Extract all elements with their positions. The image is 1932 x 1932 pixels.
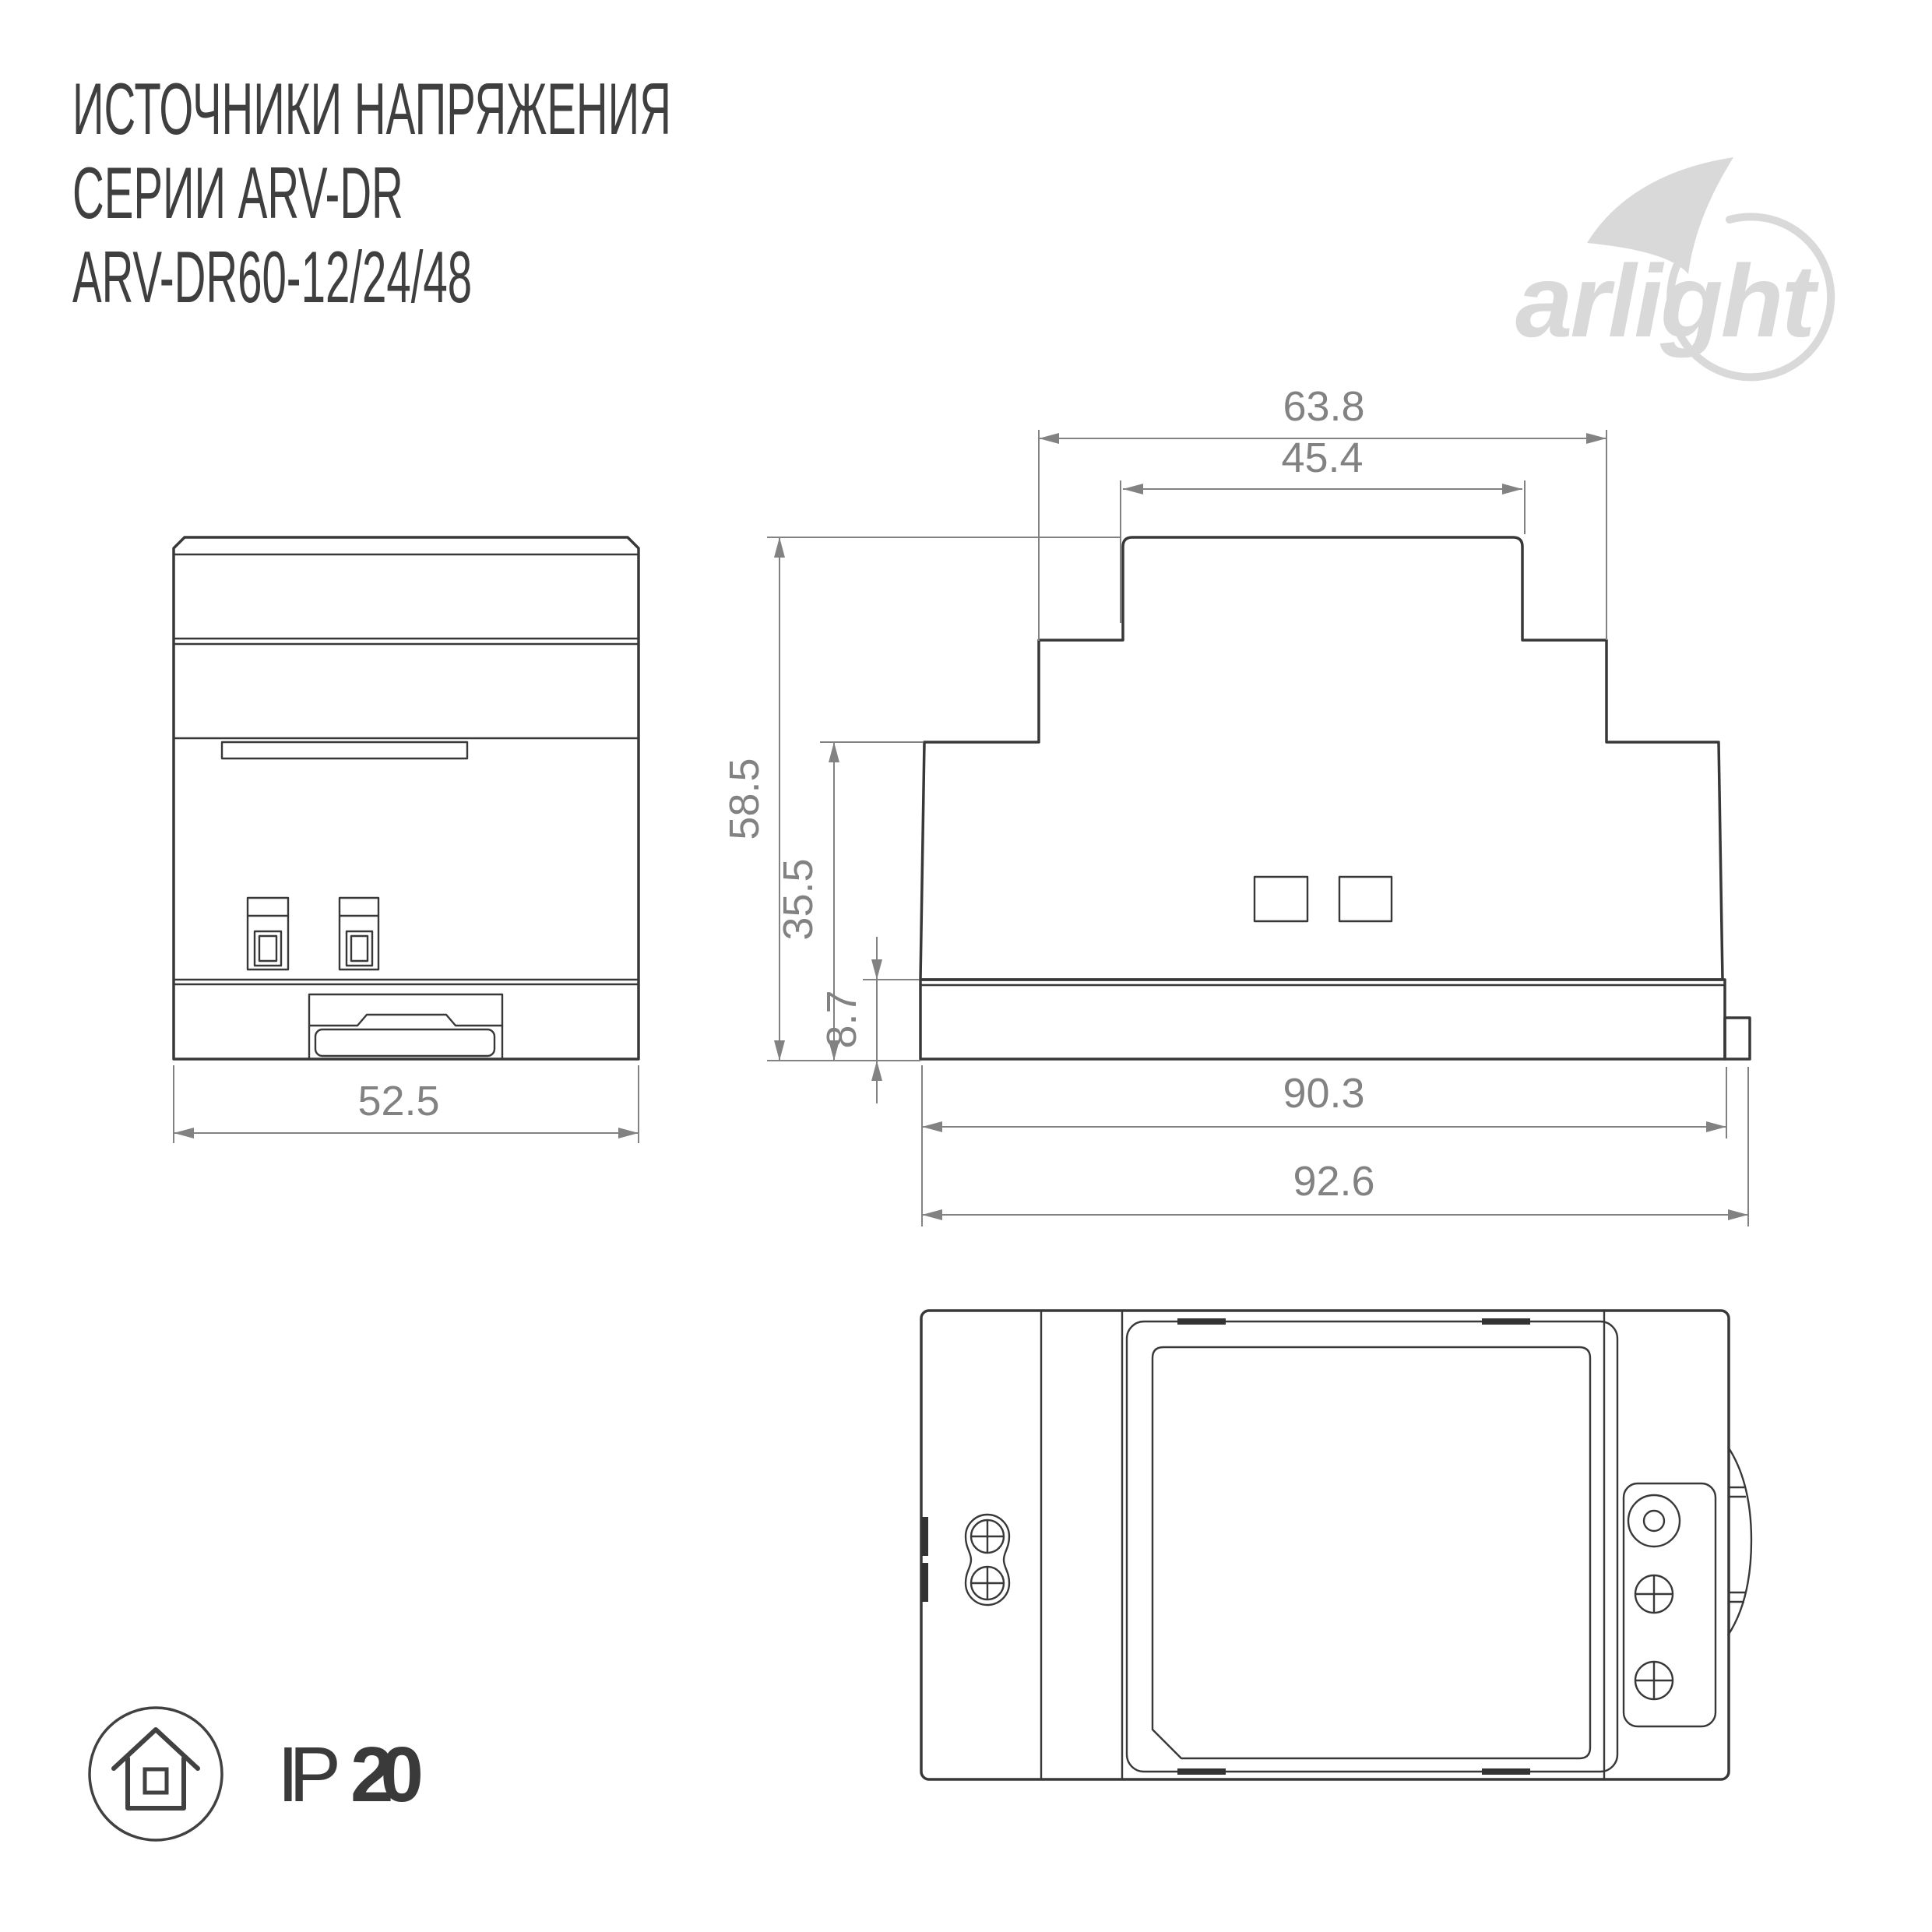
bottom-label-area <box>1127 1321 1617 1772</box>
front-din-clip <box>309 994 502 1059</box>
bottom-left-screws <box>966 1515 1009 1605</box>
dim-cap-width: 45.4 <box>1121 435 1525 623</box>
indoor-house-icon <box>90 1708 222 1840</box>
bottom-clip <box>1728 1447 1751 1635</box>
side-base-outline <box>920 980 1725 1059</box>
dim-label-92-6: 92.6 <box>1293 1158 1374 1205</box>
front-terminal-1 <box>248 898 288 970</box>
dim-label-90-3: 90.3 <box>1283 1070 1364 1117</box>
bottom-right-panel <box>1624 1483 1716 1726</box>
front-terminal-2 <box>340 898 378 970</box>
bottom-body-outline <box>921 1311 1729 1779</box>
datasheet-page: ИСТОЧНИКИ НАПРЯЖЕНИЯ СЕРИИ ARV-DR ARV-DR… <box>0 0 1932 1932</box>
side-window-2 <box>1339 877 1392 921</box>
side-view: 63.8 45.4 58.5 <box>721 383 1750 1226</box>
side-profile-outline <box>920 537 1723 980</box>
front-body-outline <box>174 537 639 1059</box>
dim-label-58-5: 58.5 <box>721 758 768 839</box>
technical-drawing: arlight <box>0 0 1932 1932</box>
screw-icon <box>1635 1662 1673 1699</box>
ip-badge: IP 20 <box>90 1708 424 1840</box>
dim-front-width: 52.5 <box>174 1065 639 1143</box>
arlight-logo: arlight <box>1515 157 1831 377</box>
side-clip-tab <box>1725 1018 1750 1059</box>
front-view: 52.5 <box>174 537 639 1143</box>
dim-label-45-4: 45.4 <box>1281 435 1363 481</box>
dim-label-63-8: 63.8 <box>1283 383 1364 430</box>
bottom-label-inner <box>1153 1347 1590 1758</box>
dim-label-35-5: 35.5 <box>775 858 822 940</box>
screw-icon <box>1635 1575 1673 1613</box>
screw-icon <box>971 1567 1004 1599</box>
ip-rating-prefix: IP <box>277 1731 341 1818</box>
dim-label-52-5: 52.5 <box>357 1078 439 1124</box>
logo-brand-text: arlight <box>1515 244 1819 358</box>
side-window-1 <box>1255 877 1307 921</box>
adjustment-hole-icon <box>1628 1495 1680 1547</box>
bottom-view <box>921 1311 1751 1779</box>
front-label-slot <box>222 742 467 758</box>
ip-rating-value: 20 <box>350 1731 424 1818</box>
dim-label-8-7: 8.7 <box>818 990 865 1048</box>
screw-icon <box>971 1520 1004 1553</box>
